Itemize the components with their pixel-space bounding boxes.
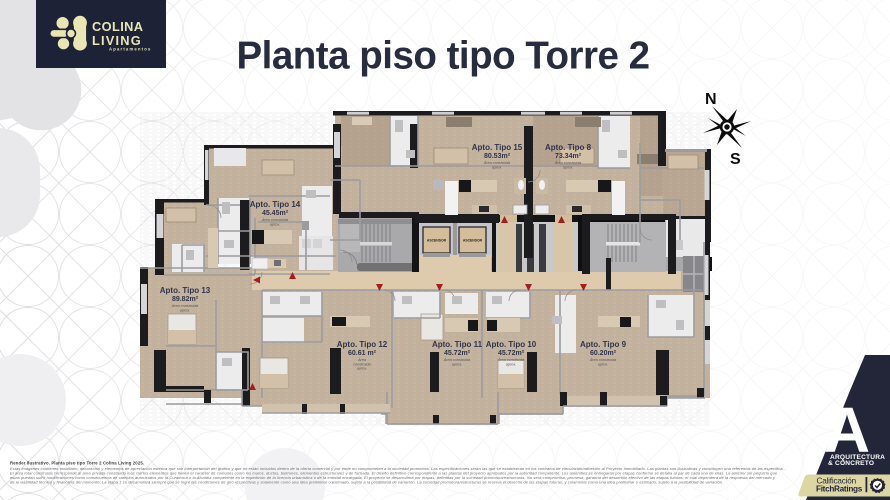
svg-text:Apto. Tipo 9: Apto. Tipo 9 (580, 340, 627, 349)
svg-text:ASCENSOR: ASCENSOR (463, 239, 483, 243)
svg-text:45.72m²: 45.72m² (498, 350, 525, 357)
svg-text:Render ilustrativo. Planta pis: Render ilustrativo. Planta piso tipo Tor… (10, 461, 144, 466)
svg-text:Apto. Tipo 10: Apto. Tipo 10 (486, 340, 537, 349)
svg-text:ASCENSOR: ASCENSOR (427, 239, 447, 243)
svg-text:de la viabilidad técnica y fin: de la viabilidad técnica y financiera de… (10, 479, 723, 484)
svg-text:Apto. Tipo 12: Apto. Tipo 12 (337, 340, 388, 349)
svg-text:S: S (730, 151, 741, 168)
svg-text:aprox.: aprox. (270, 222, 281, 226)
svg-text:Apto. Tipo 14: Apto. Tipo 14 (250, 200, 301, 209)
svg-text:aprox.: aprox. (506, 362, 517, 366)
svg-text:aprox.: aprox. (492, 165, 503, 169)
svg-text:aprox.: aprox. (598, 362, 609, 366)
svg-text:Apto. Tipo 11: Apto. Tipo 11 (432, 340, 483, 349)
svg-text:Apartamentos: Apartamentos (109, 47, 152, 52)
svg-text:N: N (705, 91, 717, 108)
svg-text:aprox.: aprox. (357, 367, 368, 371)
svg-text:COLINA: COLINA (92, 19, 143, 34)
svg-text:73.34m²: 73.34m² (555, 153, 582, 160)
svg-text:60.61 m²: 60.61 m² (348, 350, 377, 357)
svg-text:aprox.: aprox. (563, 165, 574, 169)
svg-text:FitchRatings: FitchRatings (816, 484, 863, 493)
svg-text:aprox.: aprox. (452, 362, 463, 366)
svg-text:Apto. Tipo 15: Apto. Tipo 15 (472, 143, 523, 152)
svg-text:60.20m²: 60.20m² (590, 350, 617, 357)
svg-text:aprox.: aprox. (180, 308, 191, 312)
svg-text:80.53m²: 80.53m² (484, 153, 511, 160)
svg-text:Apto. Tipo 13: Apto. Tipo 13 (160, 286, 211, 295)
svg-text:89.82m²: 89.82m² (172, 296, 199, 303)
svg-text:45.45m²: 45.45m² (262, 210, 289, 217)
svg-text:Apto. Tipo 8: Apto. Tipo 8 (545, 143, 592, 152)
svg-text:Planta piso tipo Torre 2: Planta piso tipo Torre 2 (237, 35, 650, 78)
svg-text:& CONCRETO: & CONCRETO (828, 460, 874, 467)
svg-text:45.72m²: 45.72m² (444, 350, 471, 357)
